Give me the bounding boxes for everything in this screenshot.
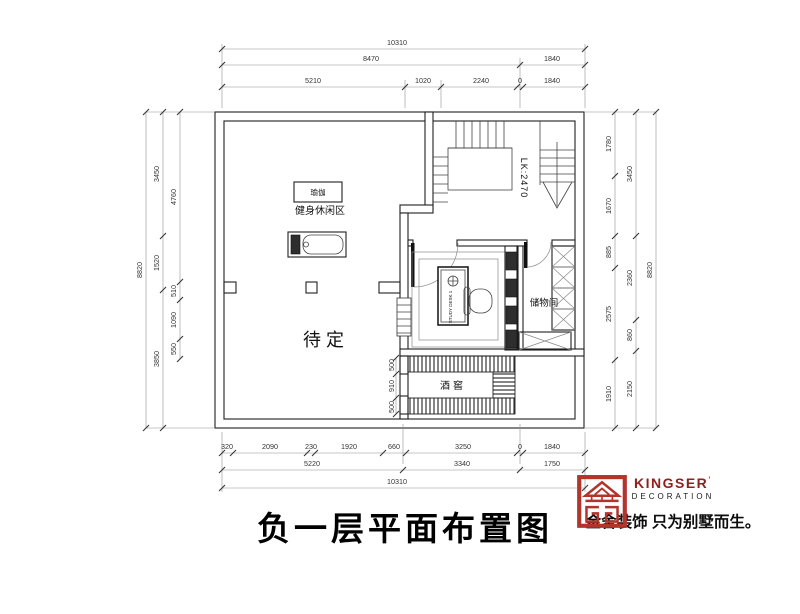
dimension-label: 0 <box>518 76 522 85</box>
dimension-label: 320 <box>221 442 233 451</box>
dimension-label: 500 <box>387 401 396 413</box>
storage-room-label: 储物间 <box>530 297 559 309</box>
pending-area-label: 待定 <box>303 330 349 350</box>
dimension-label: 3450 <box>152 166 161 182</box>
yoga-label: 瑜伽 <box>311 187 326 197</box>
wine-rack-right <box>493 372 515 398</box>
dimension-label: 860 <box>625 329 634 341</box>
dimension-label: 1090 <box>169 312 178 328</box>
dimension-label: 3250 <box>455 442 471 451</box>
dimension-label: 3450 <box>625 166 634 182</box>
dimension-label: 2575 <box>604 306 613 322</box>
dimension-label: 1780 <box>604 136 613 152</box>
study-desk-label: STUDY DESK 1 <box>448 290 453 323</box>
dimension-label: 3340 <box>454 459 470 468</box>
dimension-label: 2360 <box>625 270 634 286</box>
floor-plan-page: 1031084701840521010202240018403202090230… <box>0 0 800 614</box>
dimension-label: 1910 <box>604 386 613 402</box>
dimension-label: 660 <box>388 442 400 451</box>
study-desk <box>438 267 468 325</box>
kingser-logo-icon <box>575 474 629 532</box>
dimension-label: 5210 <box>305 76 321 85</box>
dimension-label: 1840 <box>544 76 560 85</box>
dimension-label: 8820 <box>135 262 144 278</box>
study-door-leaf <box>411 243 415 287</box>
dimension-label: 1920 <box>341 442 357 451</box>
dimension-label: 500 <box>387 359 396 371</box>
wall-opening <box>397 298 411 336</box>
logo-mark: ’ <box>708 475 712 484</box>
dimension-label: 0 <box>518 442 522 451</box>
dimension-label: 1840 <box>544 442 560 451</box>
storage-door-leaf <box>524 242 528 268</box>
dimension-label: 5220 <box>304 459 320 468</box>
dimension-label: 8470 <box>363 54 379 63</box>
dimension-label: 1670 <box>604 198 613 214</box>
doors <box>411 242 551 287</box>
wine-cellar-label: 酒窖 <box>440 379 466 392</box>
interior-walls <box>224 112 584 419</box>
dimension-label: 510 <box>169 285 178 297</box>
dimension-label: 10310 <box>387 477 407 486</box>
treadmill <box>288 232 346 257</box>
dimension-label: 230 <box>305 442 317 451</box>
dimension-label: 2090 <box>262 442 278 451</box>
dimension-label: 550 <box>169 343 178 355</box>
staircase <box>433 121 575 208</box>
dimension-label: 8820 <box>645 262 654 278</box>
fitness-area-label: 健身休闲区 <box>295 204 345 217</box>
wine-rack-bottom <box>408 398 515 414</box>
bookshelf <box>505 246 518 350</box>
study-room <box>397 246 518 350</box>
dimension-label: 910 <box>387 380 396 392</box>
dimension-label: 1520 <box>152 255 161 271</box>
wine-rack-top <box>408 356 515 372</box>
dimension-label: 2240 <box>473 76 489 85</box>
dimension-label: 1020 <box>415 76 431 85</box>
dimension-label: 10310 <box>387 38 407 47</box>
dimension-label: 1750 <box>544 459 560 468</box>
dimension-label: 885 <box>604 246 613 258</box>
company-branding: KINGSER’ DECORATION 金舍装饰 只为别墅而生。 <box>575 474 771 532</box>
stair-height-label: LK:2470 <box>519 158 529 199</box>
dimension-label: 4760 <box>169 189 178 205</box>
drawing-title: 负一层平面布置图 <box>200 502 610 550</box>
dimension-label: 3850 <box>152 351 161 367</box>
dimension-label: 1840 <box>544 54 560 63</box>
dimension-label: 2150 <box>625 381 634 397</box>
